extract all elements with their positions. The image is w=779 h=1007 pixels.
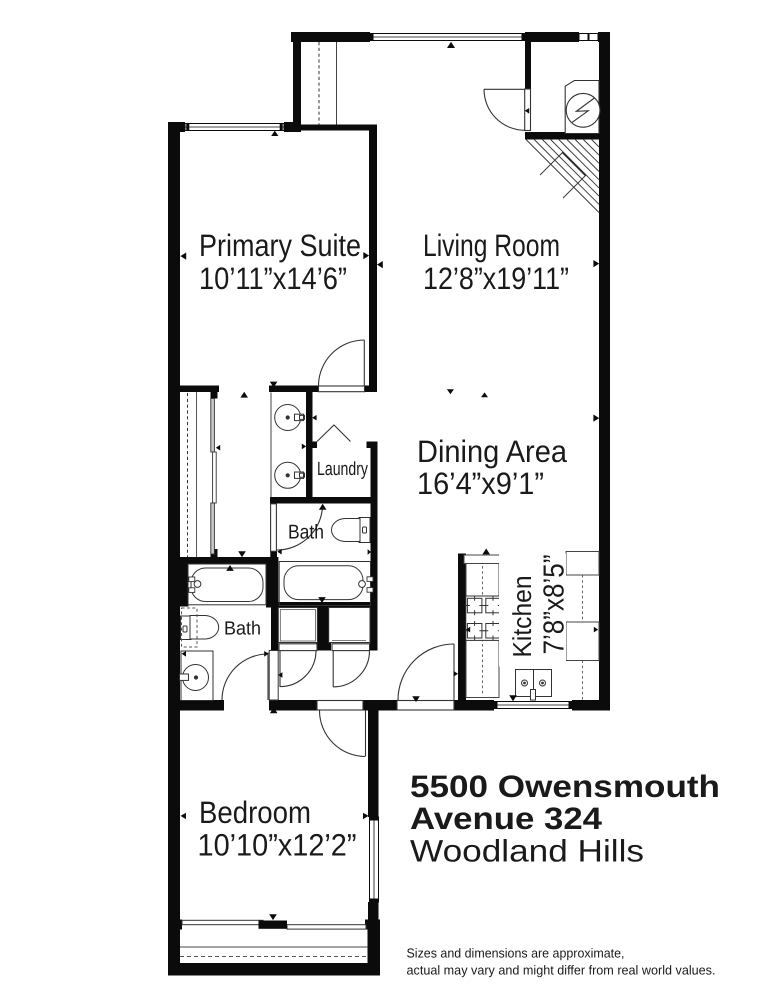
svg-text:Woodland Hills: Woodland Hills [410, 834, 644, 869]
svg-text:10’11”x14’6”: 10’11”x14’6” [199, 261, 347, 296]
svg-text:Avenue 324: Avenue 324 [410, 801, 603, 836]
svg-text:16’4”x9’1”: 16’4”x9’1” [417, 466, 544, 501]
svg-text:12’8”x19’11”: 12’8”x19’11” [423, 261, 569, 296]
svg-text:10’10”x12’2”: 10’10”x12’2” [198, 828, 357, 863]
svg-text:Living Room: Living Room [423, 228, 560, 263]
svg-text:5500 Owensmouth: 5500 Owensmouth [410, 769, 720, 804]
svg-text:Bedroom: Bedroom [199, 795, 311, 830]
svg-text:actual may vary and might diff: actual may vary and might differ from re… [407, 963, 716, 978]
svg-text:Kitchen: Kitchen [507, 576, 537, 658]
svg-text:Laundry: Laundry [317, 459, 368, 480]
svg-text:Bath: Bath [288, 522, 324, 544]
svg-text:Dining Area: Dining Area [417, 434, 568, 469]
svg-text:Bath: Bath [224, 618, 261, 639]
svg-text:Sizes and dimensions are appro: Sizes and dimensions are approximate, [407, 946, 625, 961]
svg-text:Primary Suite: Primary Suite [199, 228, 361, 263]
svg-text:7’8”x8’5”: 7’8”x8’5” [539, 555, 571, 655]
